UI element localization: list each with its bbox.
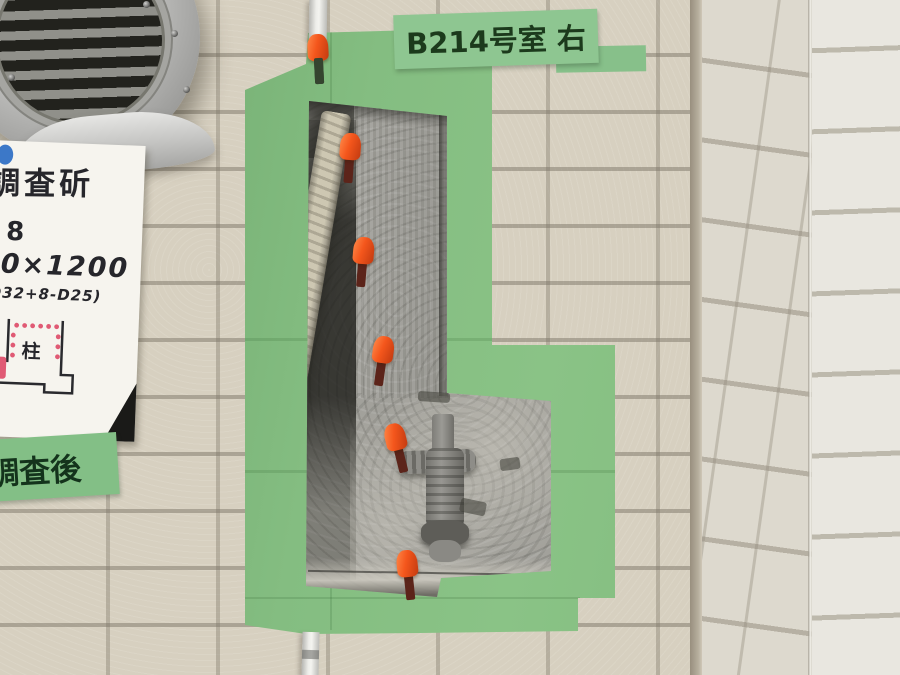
room-label-text: B214号室 右 <box>406 15 587 63</box>
room-label-tape: B214号室 右 <box>393 9 599 69</box>
wall-corner-grout <box>690 0 702 675</box>
svg-text:柱: 柱 <box>21 339 41 363</box>
corner-column-front-face <box>812 0 900 675</box>
conduit-pipe-bottom <box>301 632 319 675</box>
photo-construction-inspection: 調査斫 8 50×1200 (D32+8-D25) 柱 調査後 B214号室 右 <box>0 0 900 675</box>
marker-pin <box>337 132 362 187</box>
column-section-sketch: 柱 <box>0 312 93 412</box>
note-line-1: 調査斫 <box>0 157 94 203</box>
vent-screw-icon <box>8 74 15 81</box>
vent-screw-icon <box>171 30 178 37</box>
handwritten-note-sheet: 調査斫 8 50×1200 (D32+8-D25) 柱 <box>0 140 146 442</box>
status-tape: 調査後 <box>0 432 120 502</box>
corner-column-side-face <box>702 0 812 675</box>
vent-screw-icon <box>183 86 190 93</box>
note-line-2: 8 <box>6 217 25 248</box>
marker-pin <box>307 33 331 88</box>
note-line-3: 50×1200 <box>0 248 130 285</box>
vent-screw-icon <box>143 1 150 8</box>
status-tape-label: 調査後 <box>0 443 82 494</box>
note-line-4: (D32+8-D25) <box>0 283 102 306</box>
